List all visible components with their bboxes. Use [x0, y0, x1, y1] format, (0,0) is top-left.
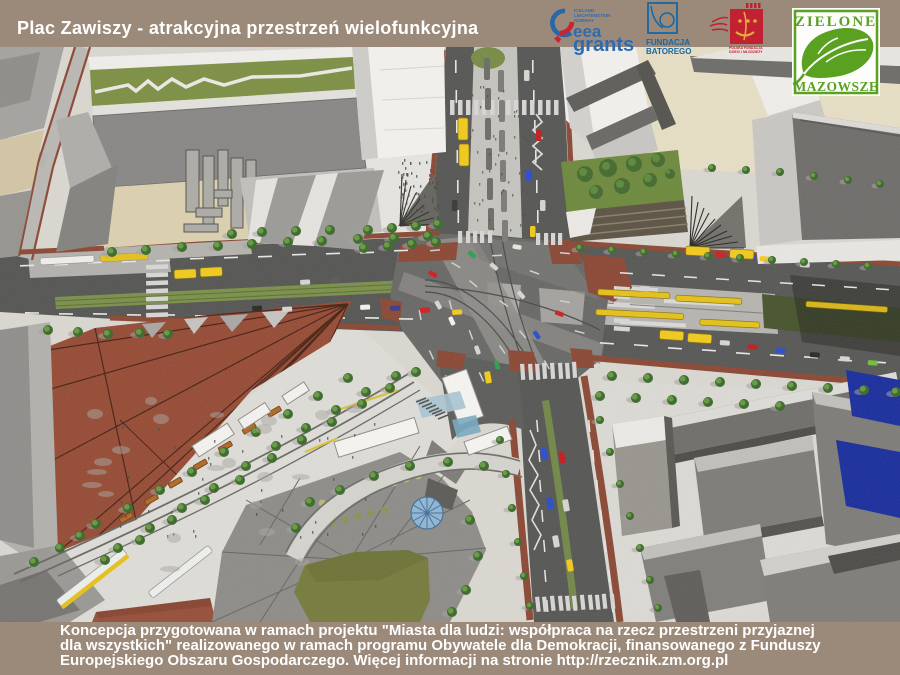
svg-text:ZIELONE: ZIELONE: [795, 14, 877, 30]
svg-text:MAZOWSZE: MAZOWSZE: [793, 79, 878, 94]
svg-text:FUNDACJA: FUNDACJA: [646, 38, 690, 47]
svg-text:DZIECI I MŁODZIEŻY: DZIECI I MŁODZIEŻY: [729, 50, 763, 54]
svg-text:BATOREGO: BATOREGO: [646, 47, 691, 56]
svg-text:grants: grants: [573, 34, 634, 56]
